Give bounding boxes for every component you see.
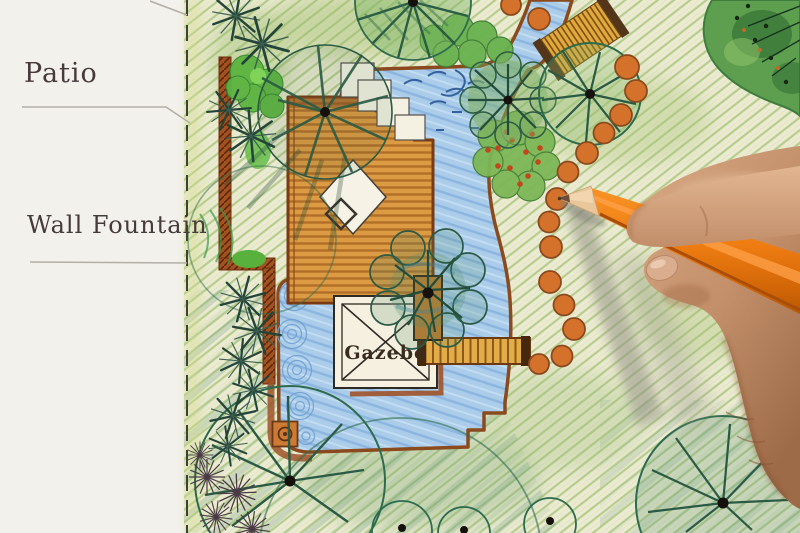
landscape-plan-photo: Patio Wall Fountain Gazebo [0, 0, 800, 533]
label-gazebo: Gazebo [336, 342, 436, 364]
label-wall-fountain: Wall Fountain [27, 211, 208, 239]
plan-drawing [0, 0, 800, 533]
leader-wall-fountain [30, 262, 187, 263]
label-patio: Patio [24, 58, 98, 89]
